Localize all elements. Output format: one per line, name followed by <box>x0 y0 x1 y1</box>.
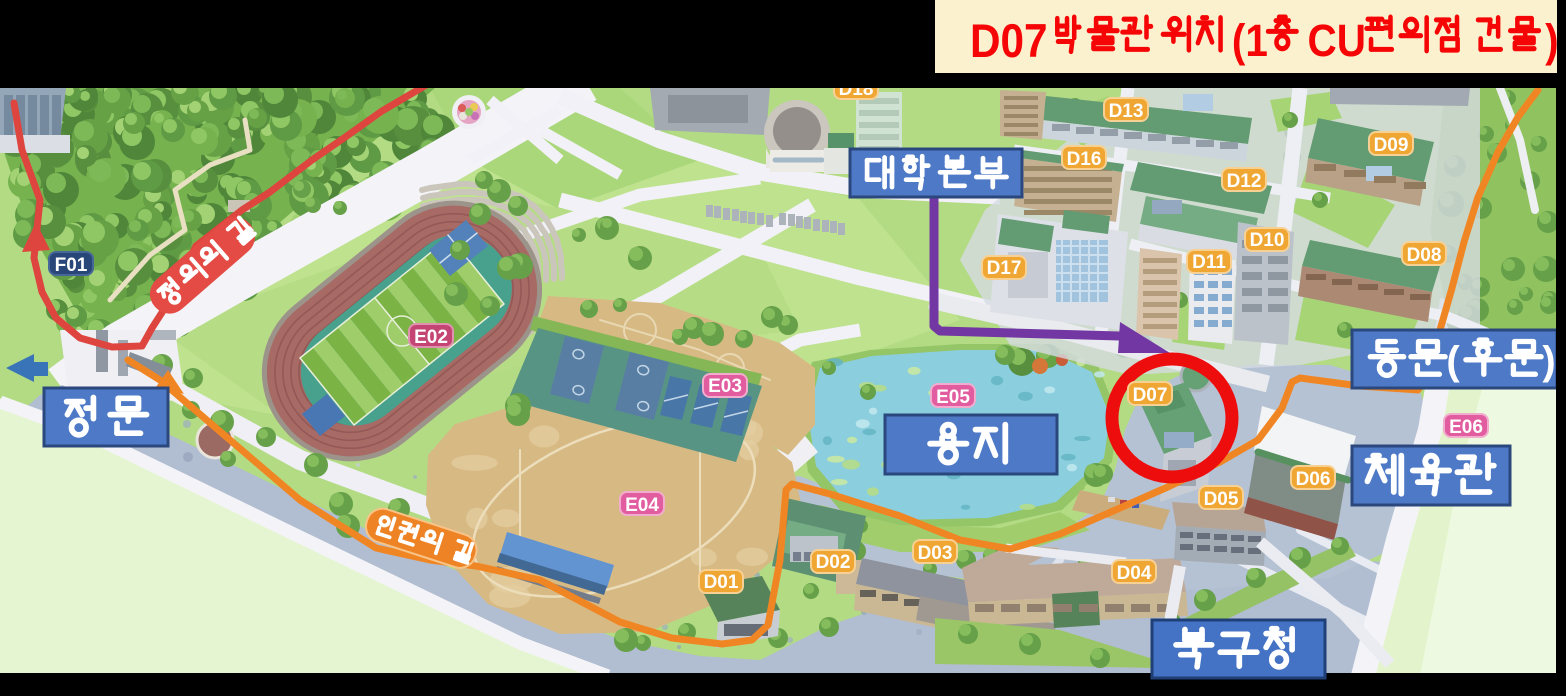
svg-text:D07: D07 <box>970 16 1048 68</box>
svg-text:CU: CU <box>1308 16 1366 66</box>
svg-text:(1: (1 <box>1232 16 1268 66</box>
svg-text:): ) <box>1545 16 1558 66</box>
